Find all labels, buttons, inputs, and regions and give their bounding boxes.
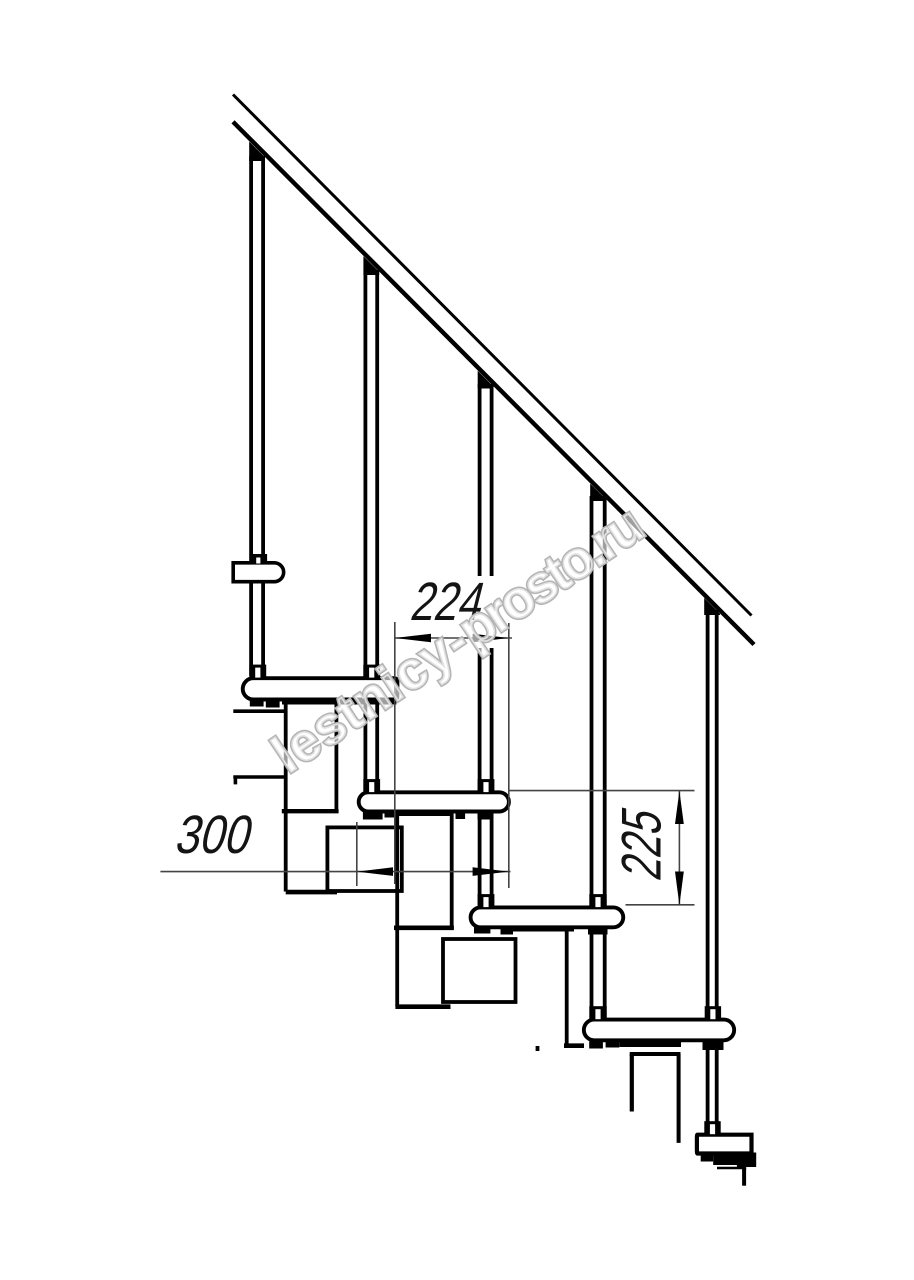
svg-text:300: 300 [171, 804, 260, 865]
